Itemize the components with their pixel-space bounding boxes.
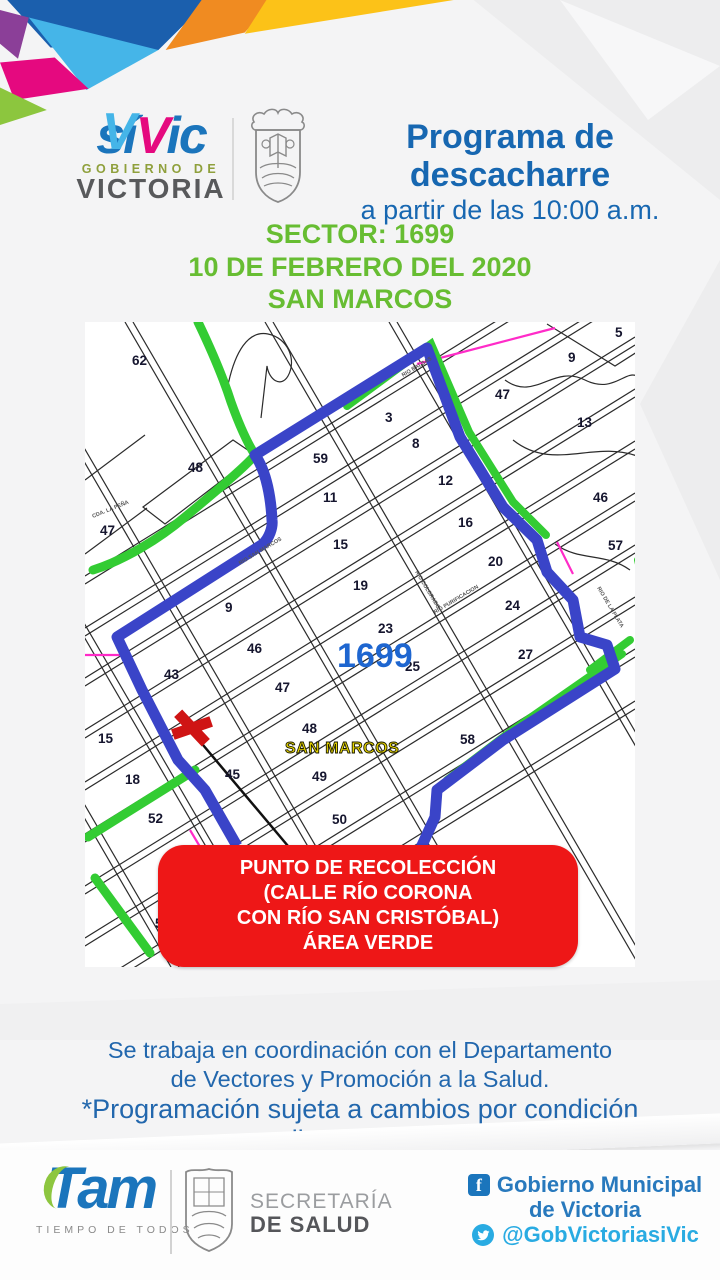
colonia-line: SAN MARCOS [0, 283, 720, 316]
svg-text:48: 48 [302, 721, 318, 736]
svg-text:19: 19 [353, 578, 368, 593]
svg-text:62: 62 [132, 353, 147, 368]
svg-text:58: 58 [460, 732, 476, 747]
svg-text:47: 47 [495, 387, 510, 402]
date-line: 10 DE FEBRERO DEL 2020 [0, 251, 720, 284]
facebook-name-line1: Gobierno Municipal [497, 1172, 702, 1197]
twitter-icon [471, 1223, 495, 1247]
announcement: SECTOR: 1699 10 DE FEBRERO DEL 2020 SAN … [0, 218, 720, 316]
flyer-poster: síVVic GOBIERNO DE VICTORIA Programa de … [0, 0, 720, 1280]
svg-text:46: 46 [247, 641, 263, 656]
svg-text:18: 18 [125, 772, 141, 787]
svg-text:9: 9 [568, 350, 576, 365]
svg-text:27: 27 [518, 647, 533, 662]
svg-text:12: 12 [438, 473, 453, 488]
svg-text:57: 57 [608, 538, 623, 553]
sivic-logo-wordmark: síVVic [66, 114, 236, 158]
block-numbers: 6248591147381216594713465715199464347202… [98, 325, 623, 931]
sector-line: SECTOR: 1699 [0, 218, 720, 251]
logo-ic: ic [166, 107, 205, 165]
map-colonia-label: SAN MARCOS [285, 740, 399, 757]
svg-text:9: 9 [225, 600, 233, 615]
svg-text:59: 59 [313, 451, 328, 466]
svg-text:15: 15 [333, 537, 349, 552]
twitter-row: @GobVictoriasiVic [455, 1222, 715, 1247]
svg-text:13: 13 [577, 415, 593, 430]
svg-text:47: 47 [275, 680, 290, 695]
collection-point-callout: PUNTO DE RECOLECCIÓN (CALLE RÍO CORONA C… [158, 845, 578, 967]
map-sector-number: 1699 [337, 637, 413, 675]
social-media: f Gobierno Municipal de Victoria @GobVic… [455, 1172, 715, 1247]
victoria-crest-icon [246, 108, 310, 211]
de-salud-label: DE SALUD [250, 1213, 393, 1236]
logo-victoria: VICTORIA [66, 176, 236, 202]
map-extra-streets [85, 324, 635, 902]
svg-text:RIO PURIFICACION: RIO PURIFICACION [433, 584, 480, 615]
collection-point-marker [173, 713, 211, 743]
svg-text:8: 8 [412, 436, 420, 451]
tam-wordmark: Tam [36, 1160, 166, 1218]
svg-text:50: 50 [332, 812, 347, 827]
svg-text:45: 45 [225, 767, 241, 782]
tam-logo: Tam TIEMPO DE TODOS [36, 1160, 166, 1236]
coordination-line2: de Vectores y Promoción a la Salud. [0, 1065, 720, 1094]
facebook-row: f Gobierno Municipal [455, 1172, 715, 1197]
facebook-name-line2: de Victoria [455, 1197, 715, 1222]
logo-v-cyan-stroke: V [102, 110, 135, 154]
svg-text:RIO COLORADO: RIO COLORADO [413, 570, 441, 611]
callout-line2: (CALLE RÍO CORONA [158, 881, 578, 906]
tam-tagline: TIEMPO DE TODOS [36, 1224, 166, 1236]
coordination-line1: Se trabaja en coordinación con el Depart… [0, 1036, 720, 1065]
svg-text:52: 52 [148, 811, 163, 826]
svg-text:46: 46 [593, 490, 609, 505]
svg-text:48: 48 [188, 460, 204, 475]
coordination-note: Se trabaja en coordinación con el Depart… [0, 1036, 720, 1094]
svg-text:11: 11 [323, 490, 338, 505]
secretaria-label: SECRETARÍA [250, 1190, 393, 1213]
callout-line3: CON RÍO SAN CRISTÓBAL) [158, 906, 578, 931]
svg-text:3: 3 [385, 410, 393, 425]
svg-text:47: 47 [100, 523, 115, 538]
svg-text:23: 23 [378, 621, 394, 636]
svg-text:RIO DE LA PLATA: RIO DE LA PLATA [595, 586, 624, 629]
callout-line1: PUNTO DE RECOLECCIÓN [158, 856, 578, 881]
svg-text:15: 15 [98, 731, 114, 746]
logo-v: V [136, 107, 167, 165]
program-title: Programa de descacharre [310, 118, 710, 194]
svg-text:24: 24 [505, 598, 521, 613]
facebook-icon: f [468, 1174, 490, 1196]
footer: Tam TIEMPO DE TODOS SECRETARÍA DE SALUD … [0, 1150, 720, 1280]
secretaria-salud: SECRETARÍA DE SALUD [250, 1190, 393, 1236]
tamaulipas-crest-icon [180, 1166, 238, 1259]
svg-text:5: 5 [615, 325, 623, 340]
header: síVVic GOBIERNO DE VICTORIA Programa de … [0, 100, 720, 215]
callout-line4: ÁREA VERDE [158, 931, 578, 956]
sivic-logo: síVVic GOBIERNO DE VICTORIA [66, 114, 236, 202]
svg-text:20: 20 [488, 554, 503, 569]
bg-facet [0, 980, 720, 1040]
svg-text:16: 16 [458, 515, 474, 530]
svg-text:49: 49 [312, 769, 327, 784]
twitter-handle: @GobVictoriasiVic [502, 1222, 699, 1247]
footer-divider [170, 1170, 172, 1254]
svg-text:43: 43 [164, 667, 180, 682]
header-divider [232, 118, 234, 200]
header-titles: Programa de descacharre a partir de las … [310, 118, 710, 226]
